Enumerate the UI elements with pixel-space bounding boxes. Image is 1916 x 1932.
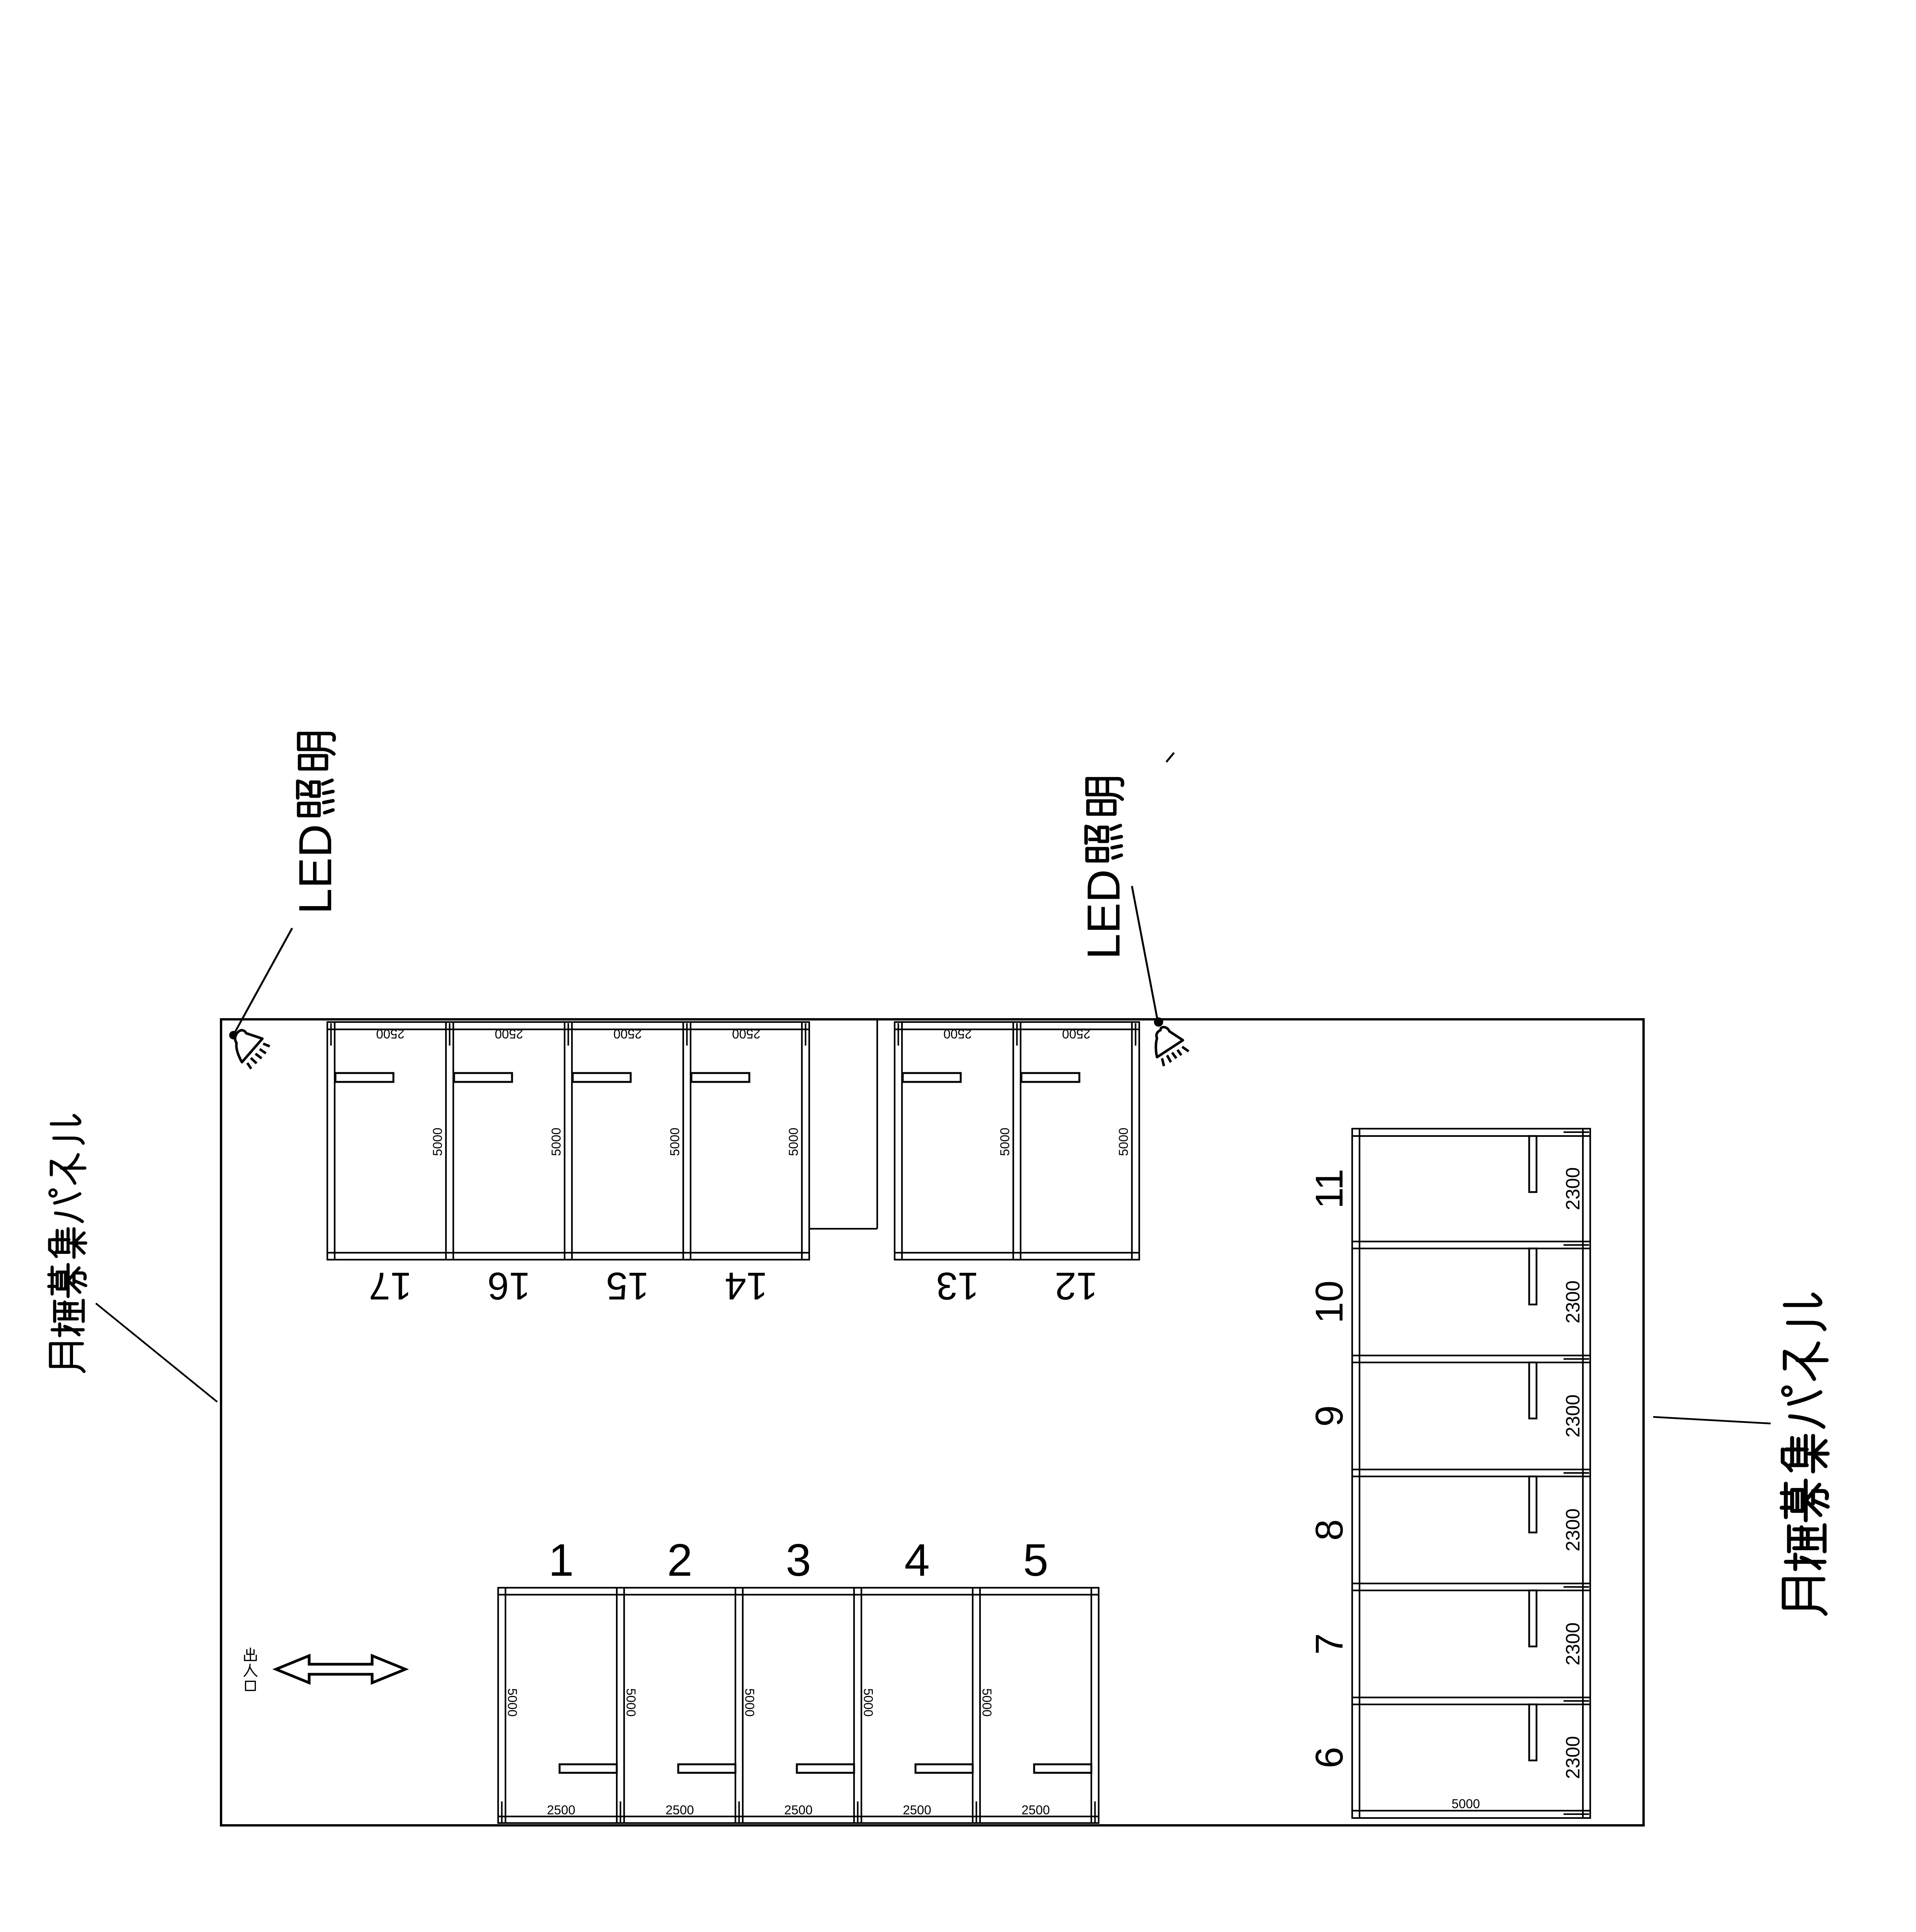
svg-text:2300: 2300 (1562, 1281, 1584, 1323)
svg-text:2500: 2500 (1021, 1803, 1050, 1817)
svg-text:5000: 5000 (431, 1128, 445, 1156)
svg-text:8: 8 (1308, 1519, 1351, 1541)
svg-text:9: 9 (1308, 1405, 1351, 1427)
svg-text:2500: 2500 (732, 1027, 760, 1041)
svg-text:5000: 5000 (549, 1128, 563, 1156)
svg-text:2500: 2500 (903, 1803, 931, 1817)
svg-text:2500: 2500 (1062, 1027, 1090, 1041)
svg-text:13: 13 (936, 1264, 979, 1308)
svg-text:2: 2 (667, 1535, 693, 1586)
svg-text:14: 14 (725, 1264, 767, 1308)
svg-text:1: 1 (548, 1535, 574, 1586)
svg-text:7: 7 (1308, 1633, 1351, 1655)
svg-text:5000: 5000 (1116, 1128, 1131, 1156)
svg-text:2500: 2500 (784, 1803, 812, 1817)
svg-text:2500: 2500 (613, 1027, 642, 1041)
svg-text:2500: 2500 (943, 1027, 972, 1041)
svg-text:2300: 2300 (1562, 1736, 1584, 1779)
svg-text:5000: 5000 (998, 1128, 1012, 1156)
svg-text:LED: LED (1078, 869, 1130, 959)
svg-text:5000: 5000 (668, 1128, 682, 1156)
svg-text:6: 6 (1308, 1747, 1351, 1769)
svg-text:4: 4 (904, 1535, 930, 1586)
svg-text:2300: 2300 (1562, 1509, 1584, 1551)
svg-text:5000: 5000 (743, 1688, 757, 1716)
svg-text:16: 16 (487, 1264, 530, 1308)
svg-text:10: 10 (1308, 1281, 1351, 1323)
svg-text:2500: 2500 (376, 1027, 404, 1041)
svg-text:17: 17 (369, 1264, 412, 1308)
svg-text:15: 15 (606, 1264, 649, 1308)
svg-text:2500: 2500 (547, 1803, 575, 1817)
svg-text:2300: 2300 (1562, 1395, 1584, 1437)
svg-text:5: 5 (1023, 1535, 1048, 1586)
svg-text:5000: 5000 (624, 1688, 638, 1716)
svg-text:3: 3 (786, 1535, 811, 1586)
svg-text:5000: 5000 (786, 1128, 801, 1156)
svg-text:2500: 2500 (495, 1027, 523, 1041)
svg-text:5000: 5000 (505, 1688, 520, 1716)
svg-text:11: 11 (1308, 1169, 1351, 1209)
svg-text:LED: LED (289, 824, 341, 914)
svg-text:5000: 5000 (861, 1688, 876, 1716)
svg-text:2500: 2500 (665, 1803, 694, 1817)
svg-text:5000: 5000 (980, 1688, 994, 1716)
svg-text:2300: 2300 (1562, 1167, 1584, 1210)
svg-text:2300: 2300 (1562, 1622, 1584, 1665)
svg-text:5000: 5000 (1451, 1797, 1480, 1811)
svg-text:12: 12 (1055, 1264, 1098, 1308)
